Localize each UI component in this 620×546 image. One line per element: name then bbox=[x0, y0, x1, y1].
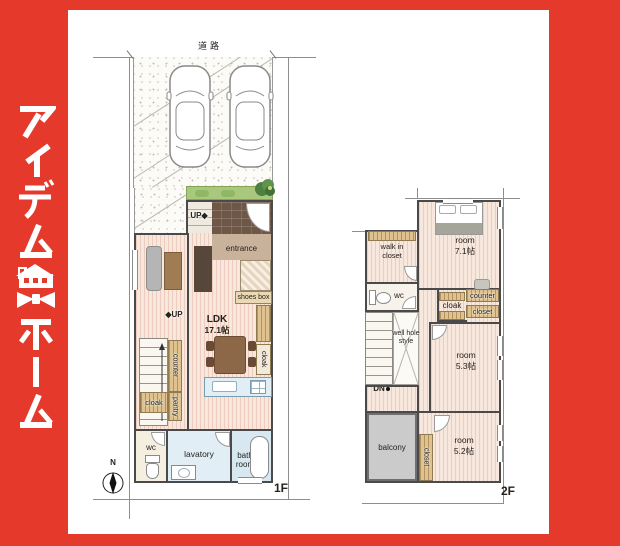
car-icon bbox=[226, 63, 274, 170]
approach-apron bbox=[134, 188, 186, 233]
counter-label: counter bbox=[172, 354, 179, 377]
floor-tag-2f: 2F bbox=[501, 485, 527, 499]
wic-label: walk in closet bbox=[375, 243, 409, 260]
katakana-de-glyph bbox=[16, 179, 56, 221]
room-71-size: 7.1帖 bbox=[442, 247, 488, 257]
cloak-1f-label: cloak bbox=[145, 398, 163, 407]
cloak-2f-shelf-bottom bbox=[439, 311, 465, 320]
cloak-1f: cloak bbox=[140, 392, 168, 413]
dining-chair bbox=[206, 341, 214, 351]
top-border bbox=[0, 0, 620, 10]
katakana-ho-glyph bbox=[16, 313, 56, 353]
cloak-2f-shelf-top bbox=[439, 292, 465, 301]
stair-start-dot bbox=[386, 387, 390, 391]
window bbox=[497, 425, 503, 441]
blanket bbox=[436, 223, 482, 234]
floor-tag-1f: 1F bbox=[274, 482, 300, 496]
closet-strip-2f: closet bbox=[419, 434, 433, 481]
ldk-label: LDK bbox=[200, 314, 234, 326]
window bbox=[238, 477, 262, 484]
dining-chair bbox=[248, 341, 256, 351]
katakana-i-glyph bbox=[16, 141, 56, 179]
entrance-up-label: UP◆ bbox=[184, 211, 214, 220]
wc-1f-label: wc bbox=[138, 443, 164, 452]
katakana-a-glyph bbox=[16, 101, 56, 141]
entrance-slope-hatch bbox=[240, 260, 271, 291]
room-71-label: room bbox=[444, 236, 486, 246]
car-icon bbox=[166, 63, 214, 170]
bed bbox=[435, 202, 483, 235]
window bbox=[497, 360, 503, 380]
well-hole bbox=[393, 312, 419, 385]
site-line-left bbox=[129, 57, 130, 519]
balcony: balcony bbox=[367, 413, 417, 481]
counter-strip: counter bbox=[168, 340, 182, 392]
window bbox=[132, 250, 138, 290]
room-53-label: room bbox=[446, 351, 486, 361]
sofa bbox=[146, 246, 162, 291]
room-52-size: 5.2帖 bbox=[442, 447, 486, 457]
shoes-box: shoes box bbox=[235, 291, 272, 304]
brand-banner bbox=[0, 0, 68, 546]
window bbox=[497, 336, 503, 356]
window bbox=[497, 207, 503, 229]
dining-chair bbox=[248, 357, 256, 367]
ldk-size-label: 17.1帖 bbox=[196, 326, 238, 336]
site-line-right bbox=[288, 57, 289, 499]
wall-stairs-south bbox=[365, 385, 419, 387]
room-52-label: room bbox=[444, 436, 484, 446]
cloak-dining-label: cloak bbox=[260, 351, 267, 367]
pantry-label: pantry bbox=[172, 397, 179, 416]
right-border bbox=[549, 0, 620, 546]
wall-room53-west bbox=[429, 322, 431, 413]
stairs-up-label: ◆UP bbox=[158, 310, 190, 319]
balcony-label: balcony bbox=[378, 443, 406, 452]
compass-n-label: N bbox=[99, 458, 127, 467]
closet-2f: closet bbox=[466, 305, 499, 318]
road-label: 道路 bbox=[186, 41, 234, 51]
wall-room53-north bbox=[429, 322, 501, 324]
dim-2f-tick bbox=[417, 188, 418, 198]
shrub bbox=[221, 190, 235, 197]
cabinet bbox=[164, 252, 182, 290]
cloak-dining: cloak bbox=[256, 344, 271, 375]
counter-2f: counter bbox=[466, 289, 499, 302]
shrub bbox=[195, 190, 209, 197]
window bbox=[443, 198, 473, 204]
dim-2f-tick bbox=[503, 188, 504, 198]
washbasin-bowl bbox=[178, 468, 190, 478]
well-hole-cross bbox=[394, 313, 418, 384]
pavement-joint bbox=[134, 188, 186, 231]
katakana-chouon-glyph bbox=[16, 353, 56, 391]
kitchen-sink bbox=[212, 381, 237, 392]
closet-strip-label: closet bbox=[423, 448, 430, 466]
lavatory-label: lavatory bbox=[177, 450, 221, 460]
floorplan-image: 道路 UP◆ bbox=[0, 0, 620, 546]
brand-vertical-logo bbox=[14, 101, 58, 431]
toilet-tank-2f bbox=[369, 290, 376, 305]
toilet-tank-1f bbox=[145, 455, 160, 463]
tree-icon bbox=[253, 177, 277, 199]
cloak-2f-label: cloak bbox=[437, 301, 467, 310]
shoe-cabinet bbox=[256, 305, 271, 342]
pillow bbox=[439, 205, 456, 214]
dining-chair bbox=[206, 357, 214, 367]
counter-2f-label: counter bbox=[470, 291, 495, 300]
room-53-size: 5.3帖 bbox=[444, 362, 488, 372]
staircase-2f bbox=[365, 312, 393, 385]
compass-needle-icon bbox=[99, 467, 127, 499]
pillow bbox=[460, 205, 477, 214]
dim-2f-left bbox=[352, 231, 366, 232]
tv-board bbox=[194, 246, 212, 292]
wic-shelf bbox=[368, 231, 416, 241]
compass: N bbox=[99, 458, 127, 500]
house-bowtie-icon bbox=[14, 261, 58, 313]
dining-table bbox=[214, 336, 246, 374]
toilet-bowl-1f bbox=[146, 463, 159, 479]
dim-2f-bottom bbox=[362, 503, 503, 504]
pantry: pantry bbox=[168, 392, 182, 421]
entrance-label: entrance bbox=[212, 244, 271, 253]
window bbox=[497, 446, 503, 462]
well-hole-label: well hole style bbox=[392, 330, 420, 346]
bottom-border bbox=[0, 534, 620, 546]
kitchen-stove bbox=[250, 380, 266, 394]
shoes-box-label: shoes box bbox=[238, 294, 270, 301]
bathtub bbox=[250, 436, 269, 479]
dim-2f-right bbox=[503, 198, 504, 504]
washbasin bbox=[171, 465, 196, 480]
katakana-mu2-glyph bbox=[16, 391, 56, 431]
katakana-mu-glyph bbox=[16, 221, 56, 261]
closet-2f-label: closet bbox=[473, 307, 493, 316]
